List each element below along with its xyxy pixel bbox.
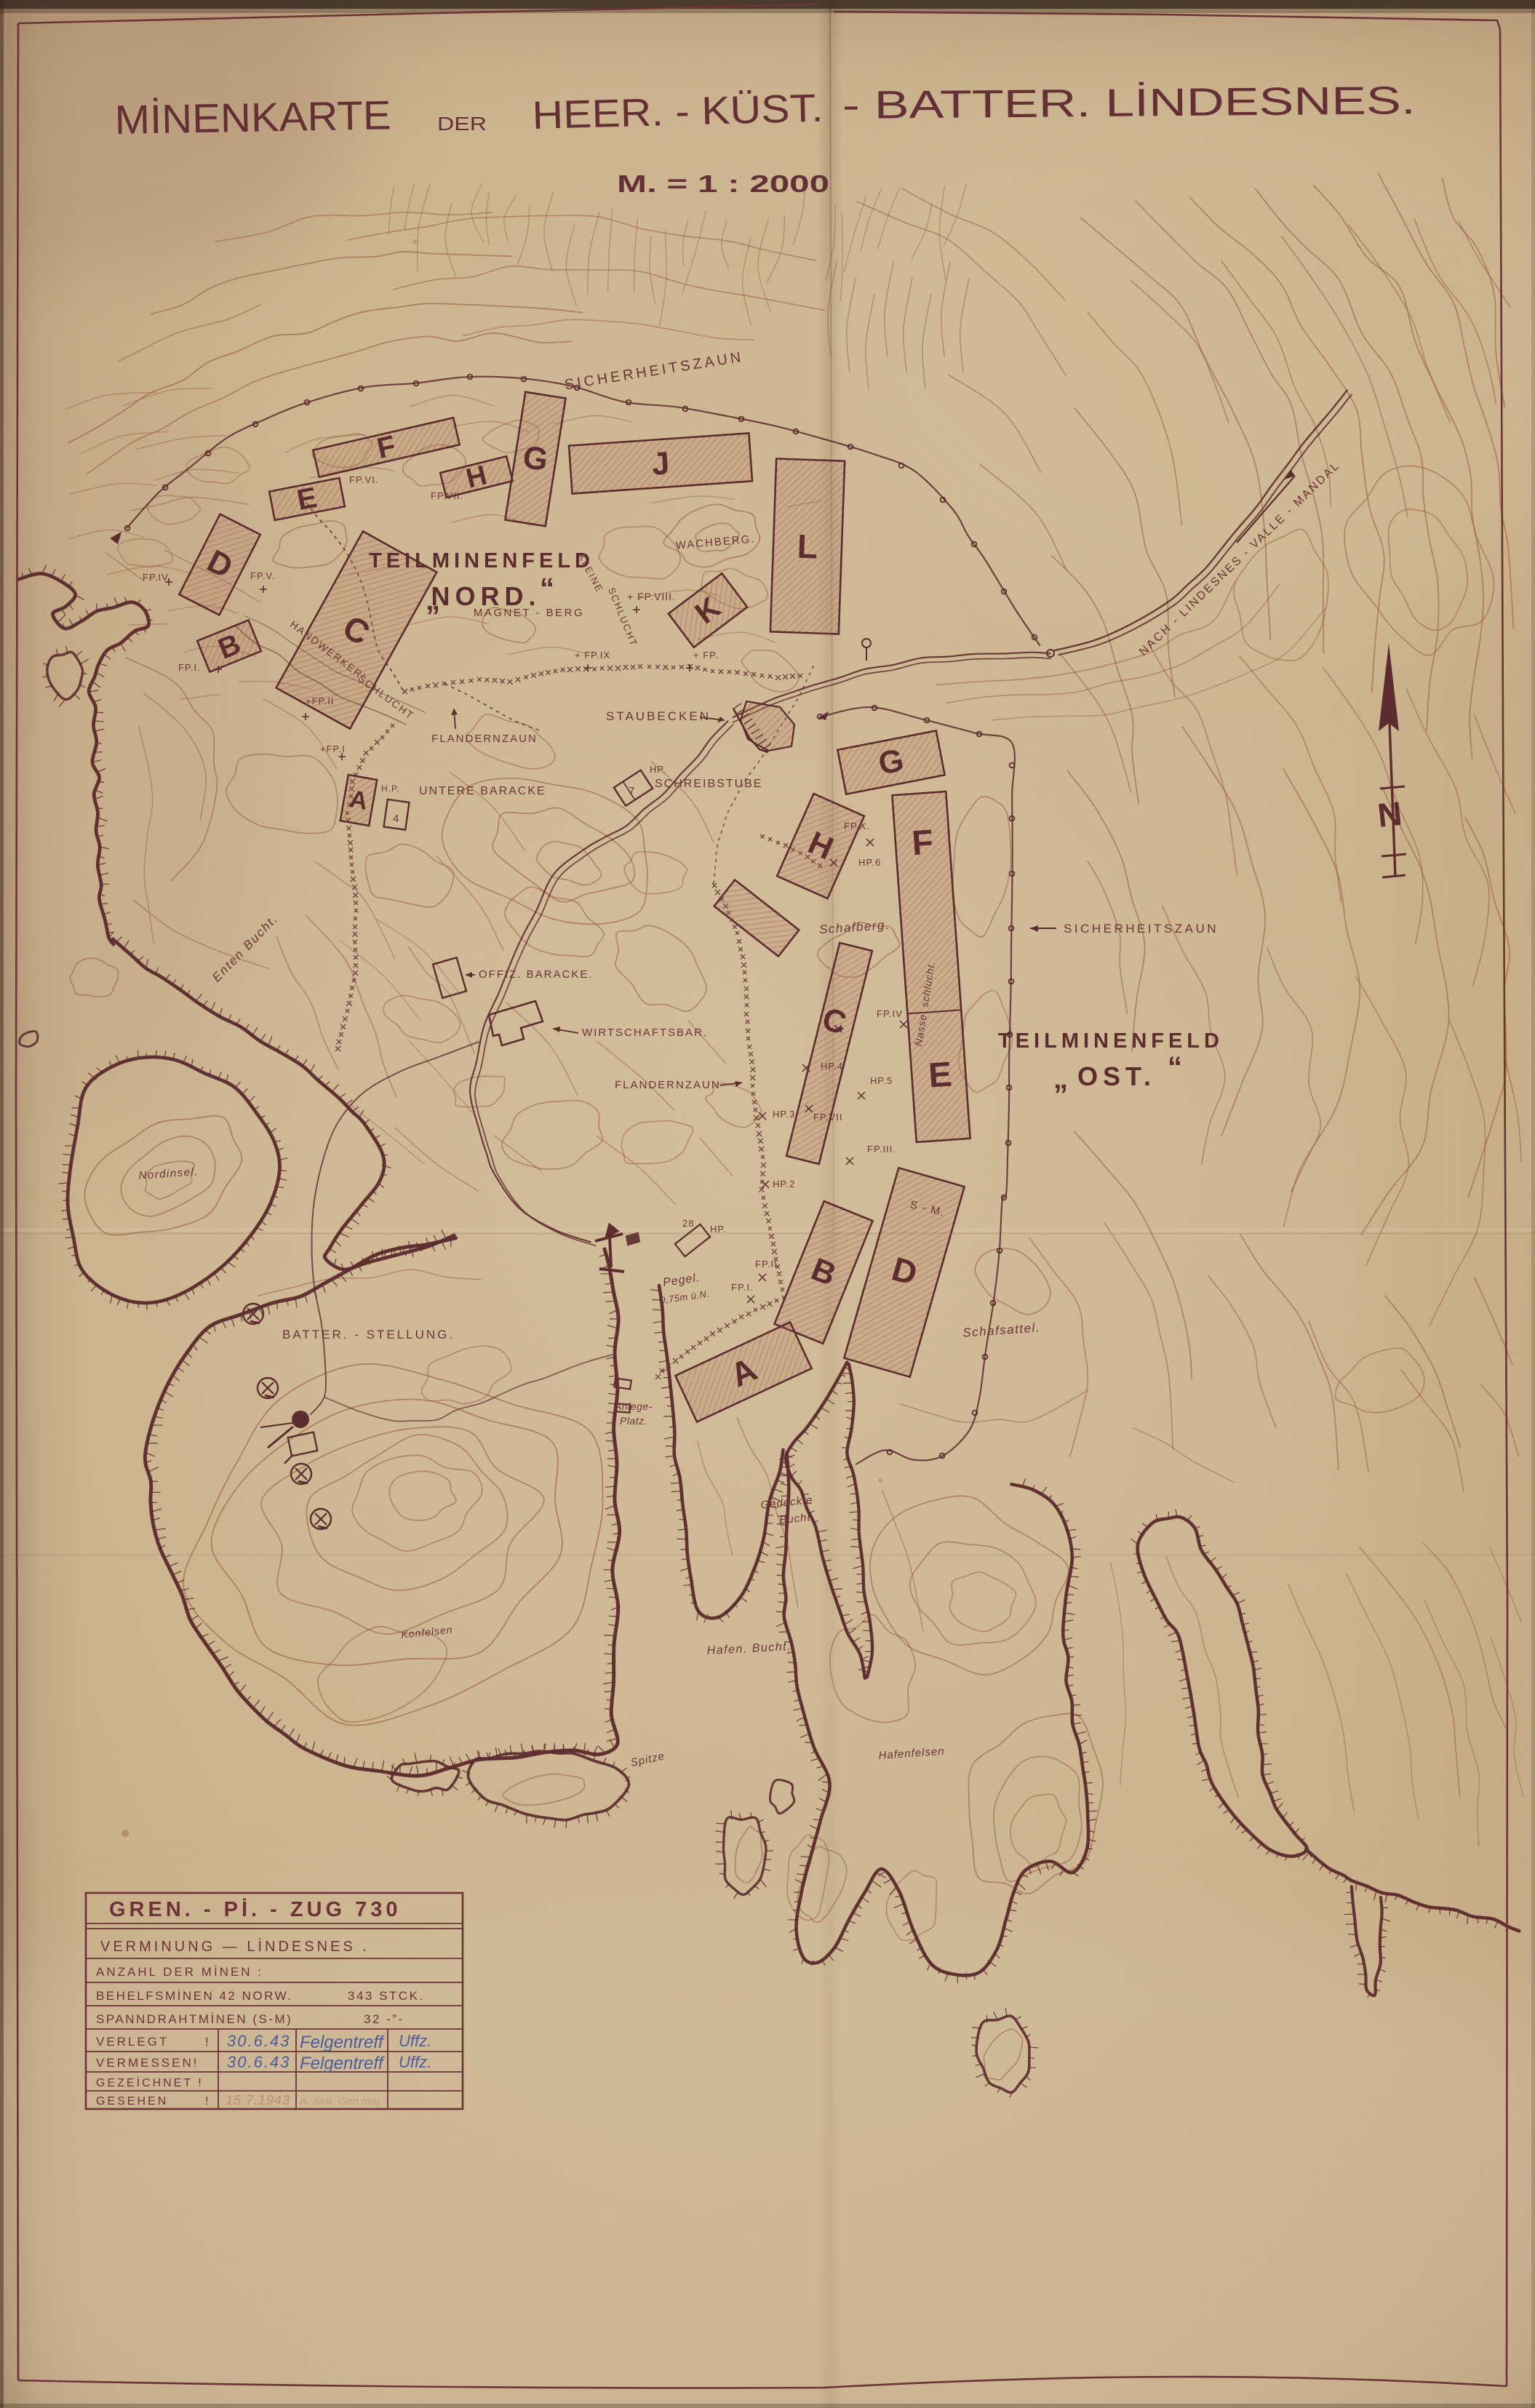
svg-text:HP.: HP. xyxy=(650,764,666,775)
svg-text:WIRTSCHAFTSBAR.: WIRTSCHAFTSBAR. xyxy=(582,1026,708,1039)
svg-text:FP.X.: FP.X. xyxy=(844,821,870,832)
svg-text:“: “ xyxy=(1168,1051,1184,1083)
svg-text:L: L xyxy=(797,527,818,566)
svg-text:FP.IV.: FP.IV. xyxy=(143,572,171,583)
svg-text:BATTER. - STELLUNG.: BATTER. - STELLUNG. xyxy=(282,1328,455,1341)
svg-text:GESEHEN: GESEHEN xyxy=(96,2095,168,2108)
svg-text:Felgentreff: Felgentreff xyxy=(300,2054,385,2073)
svg-text:M. = 1 : 2000: M. = 1 : 2000 xyxy=(617,170,829,197)
svg-text:Uffz.: Uffz. xyxy=(399,2032,431,2050)
svg-text:+ FP.VIII.: + FP.VIII. xyxy=(627,591,676,602)
svg-text:OST.: OST. xyxy=(1077,1061,1156,1091)
svg-text:FLANDERNZAUN: FLANDERNZAUN xyxy=(431,733,538,745)
svg-text:H.P.: H.P. xyxy=(381,784,400,794)
svg-text:UNTERE BARACKE: UNTERE BARACKE xyxy=(419,785,546,797)
svg-text:FP.VII.: FP.VII. xyxy=(431,490,463,501)
svg-text:+ FP.IX: + FP.IX xyxy=(575,650,610,661)
svg-text:ANZAHL DER MİNEN :: ANZAHL DER MİNEN : xyxy=(96,1965,263,1979)
svg-text:GEZEİCHNET !: GEZEİCHNET ! xyxy=(96,2076,204,2089)
svg-text:7: 7 xyxy=(629,785,634,797)
svg-text:VERLEGT: VERLEGT xyxy=(96,2035,169,2049)
svg-text:FP.II: FP.II xyxy=(755,1259,778,1269)
svg-text:OFFIZ. BARACKE.: OFFIZ. BARACKE. xyxy=(479,968,594,981)
svg-text:FP.VI.: FP.VI. xyxy=(349,474,378,485)
svg-text:DER: DER xyxy=(437,113,487,135)
svg-text:HP.5: HP.5 xyxy=(870,1075,893,1086)
svg-text:FP.III.: FP.III. xyxy=(867,1144,896,1155)
svg-text:FLANDERNZAUN: FLANDERNZAUN xyxy=(615,1079,721,1091)
svg-text:Uffz.: Uffz. xyxy=(399,2053,431,2071)
svg-text:+FP.II: +FP.II xyxy=(306,695,334,706)
svg-text:SICHERHEITSZAUN: SICHERHEITSZAUN xyxy=(1064,922,1219,936)
svg-text:+FP.I: +FP.I xyxy=(320,743,346,754)
svg-text:MİNENKARTE: MİNENKARTE xyxy=(114,92,391,143)
svg-text:HP.6: HP.6 xyxy=(858,857,881,868)
svg-text:FP.VII: FP.VII xyxy=(813,1112,842,1123)
svg-text:MAGNET - BERG: MAGNET - BERG xyxy=(474,607,584,619)
svg-text:VERMESSEN!: VERMESSEN! xyxy=(96,2056,199,2070)
svg-text:Anlege-: Anlege- xyxy=(614,1400,653,1412)
svg-text:FP.IV: FP.IV xyxy=(877,1008,903,1019)
svg-text:28: 28 xyxy=(682,1218,694,1229)
svg-text:HEER. - KÜST.: HEER. - KÜST. xyxy=(532,87,824,137)
svg-text:“: “ xyxy=(540,573,556,605)
svg-text:Platz.: Platz. xyxy=(620,1415,647,1427)
svg-text:FP.I.: FP.I. xyxy=(731,1282,754,1293)
svg-text:SCHREIBSTUBE: SCHREIBSTUBE xyxy=(655,778,762,790)
svg-text:TEILMINENFELD: TEILMINENFELD xyxy=(998,1029,1224,1053)
svg-text:E: E xyxy=(928,1055,954,1095)
svg-text:STAUBECKEN: STAUBECKEN xyxy=(606,709,711,723)
svg-text:- BATTER. LİNDESNES.: - BATTER. LİNDESNES. xyxy=(842,79,1416,127)
svg-text:HP.2: HP.2 xyxy=(773,1179,795,1189)
svg-text:343 STCK.: 343 STCK. xyxy=(348,1989,425,2003)
svg-text:15.7.1943: 15.7.1943 xyxy=(226,2093,290,2108)
svg-text:VERMINUNG — LİNDESNES .: VERMINUNG — LİNDESNES . xyxy=(100,1938,370,1955)
svg-text:„: „ xyxy=(1053,1063,1069,1095)
svg-text:TEILMINENFELD: TEILMINENFELD xyxy=(369,549,594,573)
svg-text:HP.: HP. xyxy=(710,1224,727,1235)
svg-text:F: F xyxy=(911,823,935,863)
svg-text:+ FP.: + FP. xyxy=(693,650,719,661)
svg-text:Felgentreff: Felgentreff xyxy=(300,2033,385,2052)
svg-text:J: J xyxy=(650,445,671,482)
svg-text:32 -”-: 32 -”- xyxy=(364,2012,404,2026)
svg-text:GREN. - Pİ. - ZUG 730: GREN. - Pİ. - ZUG 730 xyxy=(109,1898,402,1921)
svg-text:HP.4: HP.4 xyxy=(821,1061,843,1072)
svg-text:30.6.43: 30.6.43 xyxy=(227,2053,290,2071)
svg-text:FP.I.: FP.I. xyxy=(178,662,201,673)
svg-text:A. Stai. Gen.maj.: A. Stai. Gen.maj. xyxy=(299,2095,382,2108)
svg-text:HP.3: HP.3 xyxy=(773,1109,795,1120)
svg-text:SPANNDRAHTMİNEN (S-M): SPANNDRAHTMİNEN (S-M) xyxy=(96,2012,292,2026)
svg-text:!: ! xyxy=(205,2035,210,2049)
svg-text:BEHELFSMİNEN 42 NORW.: BEHELFSMİNEN 42 NORW. xyxy=(96,1989,292,2003)
svg-text:!: ! xyxy=(205,2095,209,2108)
svg-text:30.6.43: 30.6.43 xyxy=(227,2032,290,2050)
svg-text:4: 4 xyxy=(393,813,400,825)
svg-text:N: N xyxy=(1376,794,1405,834)
svg-text:FP.V.: FP.V. xyxy=(250,570,276,581)
